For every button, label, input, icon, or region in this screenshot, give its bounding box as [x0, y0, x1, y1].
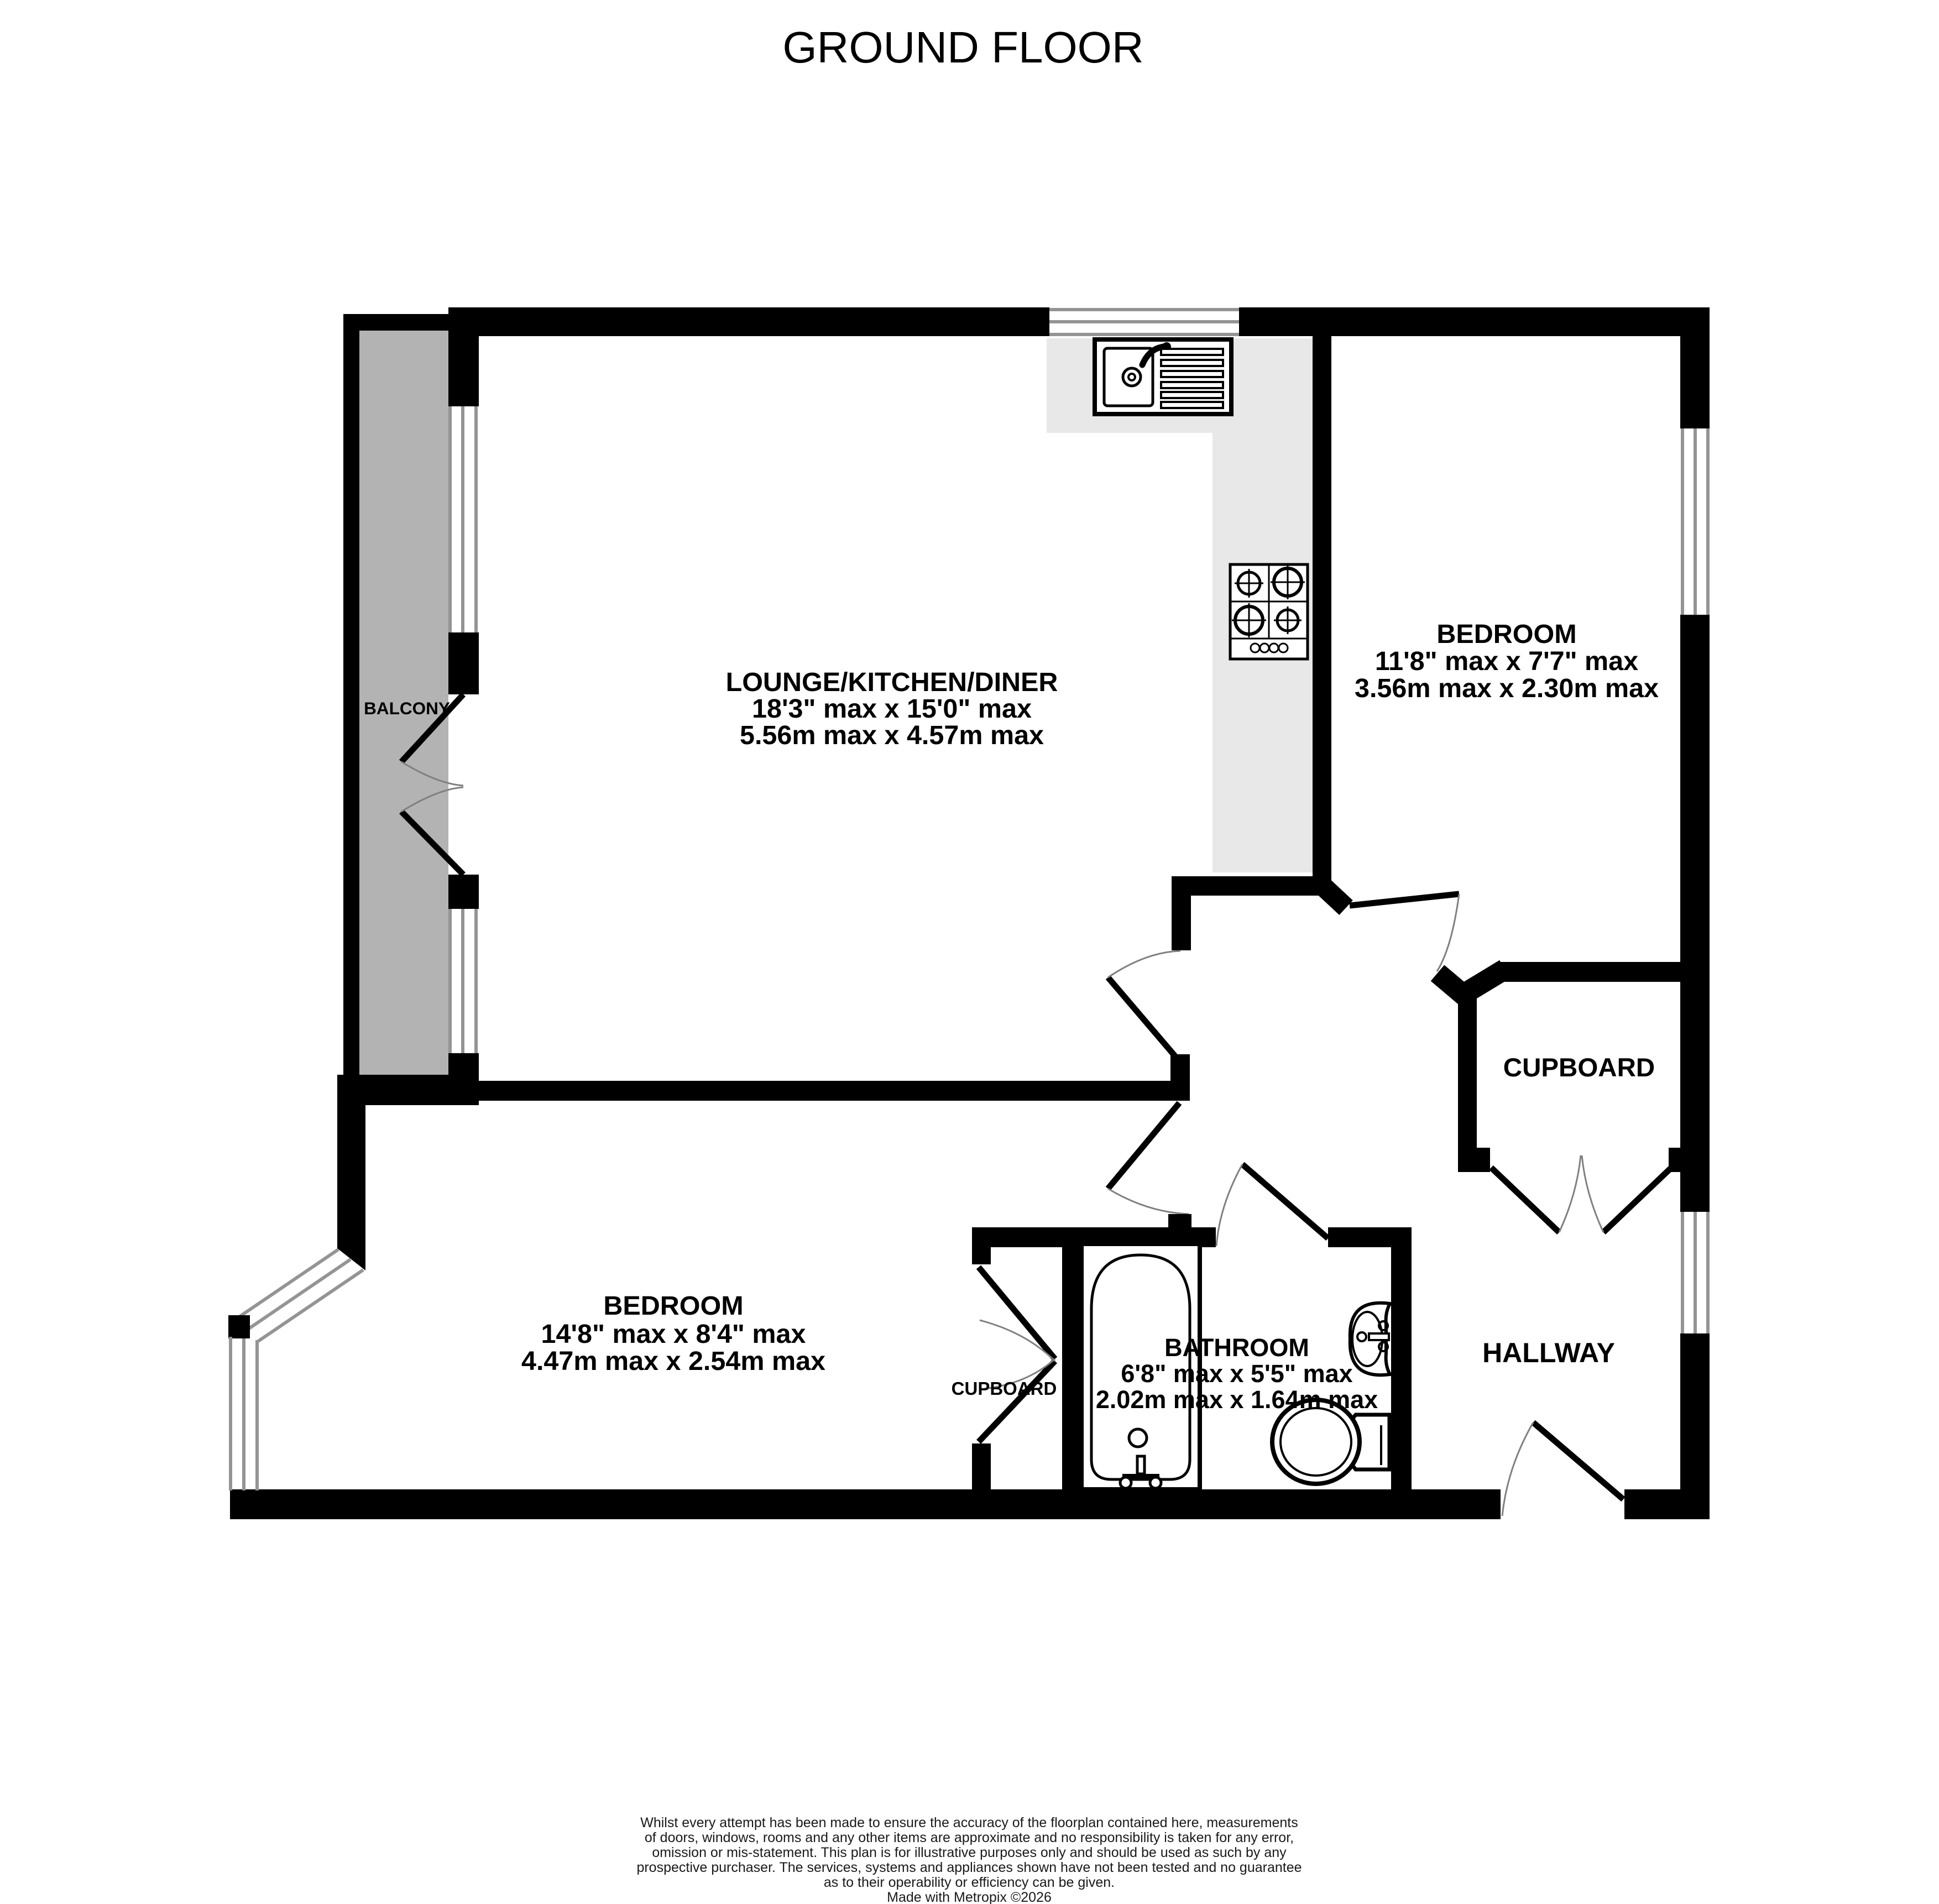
svg-text:CUPBOARD: CUPBOARD — [1503, 1053, 1655, 1082]
svg-text:5.56m max x 4.57m max: 5.56m max x 4.57m max — [740, 720, 1044, 750]
svg-text:HALLWAY: HALLWAY — [1482, 1337, 1615, 1368]
svg-text:14'8" max x 8'4" max: 14'8" max x 8'4" max — [541, 1319, 806, 1349]
svg-text:BALCONY: BALCONY — [364, 698, 450, 718]
svg-text:Whilst every attempt has been: Whilst every attempt has been made to en… — [640, 1815, 1298, 1830]
svg-text:LOUNGE/KITCHEN/DINER: LOUNGE/KITCHEN/DINER — [726, 667, 1058, 697]
svg-text:as to their operability or eff: as to their operability or efficiency ca… — [824, 1875, 1115, 1890]
svg-text:3.56m max x 2.30m max: 3.56m max x 2.30m max — [1355, 673, 1659, 703]
svg-text:of doors, windows, rooms and a: of doors, windows, rooms and any other i… — [645, 1830, 1294, 1845]
svg-text:prospective purchaser. The ser: prospective purchaser. The services, sys… — [636, 1860, 1302, 1875]
svg-text:2.02m max x 1.64m max: 2.02m max x 1.64m max — [1096, 1385, 1378, 1414]
svg-text:GROUND FLOOR: GROUND FLOOR — [782, 23, 1143, 72]
svg-text:BATHROOM: BATHROOM — [1164, 1333, 1309, 1362]
svg-text:6'8" max x 5'5" max: 6'8" max x 5'5" max — [1121, 1359, 1352, 1388]
svg-text:BEDROOM: BEDROOM — [1436, 619, 1576, 649]
svg-text:18'3" max x 15'0" max: 18'3" max x 15'0" max — [752, 694, 1032, 724]
svg-text:4.47m max x 2.54m max: 4.47m max x 2.54m max — [521, 1346, 825, 1376]
svg-text:BEDROOM: BEDROOM — [603, 1291, 743, 1321]
svg-text:CUPBOARD: CUPBOARD — [952, 1378, 1057, 1399]
svg-text:omission or mis-statement. Thi: omission or mis-statement. This plan is … — [652, 1845, 1287, 1860]
svg-text:Made with Metropix ©2026: Made with Metropix ©2026 — [887, 1890, 1052, 1904]
svg-text:11'8" max x 7'7" max: 11'8" max x 7'7" max — [1375, 646, 1638, 676]
